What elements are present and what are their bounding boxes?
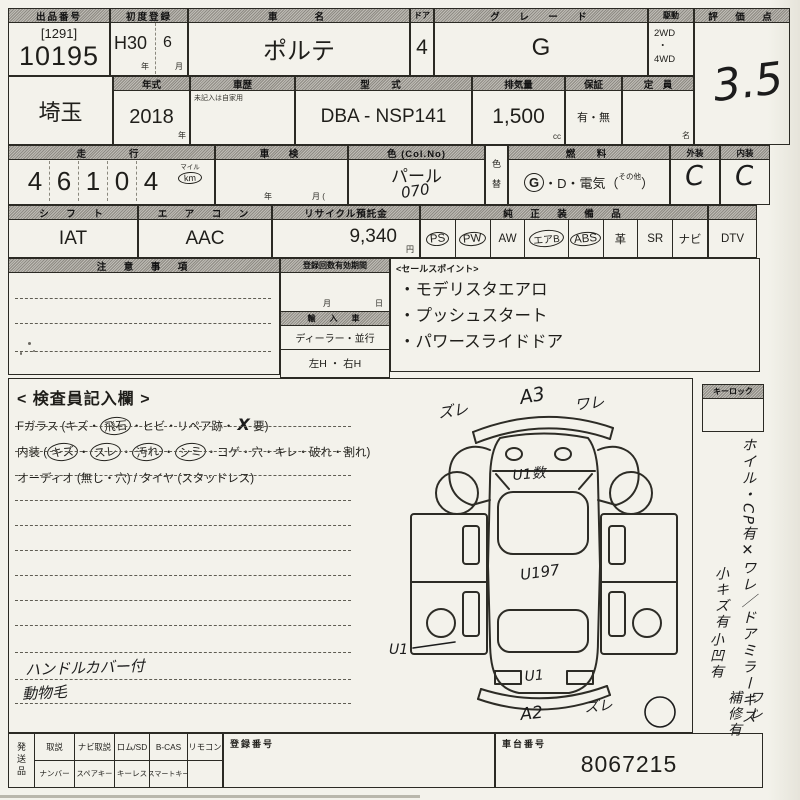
- sales-point: ・パワースライドドア: [399, 329, 759, 355]
- model-code-cell: 型 式 DBA - NSP141: [295, 76, 472, 145]
- dtv-value: DTV: [709, 220, 756, 257]
- annotation-left: U1: [389, 642, 408, 658]
- grade-cell: グ レ ー ド G: [434, 8, 648, 76]
- sidebar-note-repair: 補修有: [727, 690, 741, 738]
- ship-item: リモコン: [187, 734, 222, 760]
- fuel-other-label: その他: [619, 171, 642, 182]
- odo-digit: 4: [21, 161, 49, 201]
- wiper-right: [555, 448, 571, 460]
- text-part: ・: [163, 447, 175, 459]
- left-door-panel: [411, 514, 487, 654]
- odometer-digits: 46104: [21, 161, 165, 201]
- text-part: ・ヒビ・リペア跡・: [131, 421, 238, 433]
- doors-value: 4: [411, 23, 433, 73]
- ship-item: ナビ取説: [74, 734, 114, 760]
- car-name-value: ポルテ: [189, 23, 409, 73]
- text-part: 要): [250, 421, 269, 433]
- sidebar-note-wheel-mirror: ホイル・CP有✕ワレ／ドアミラーキズ: [740, 437, 755, 725]
- annotation-windshield: U1数: [512, 465, 548, 484]
- fuel-value: G ・D・電気（ その他 ）: [509, 160, 669, 204]
- circled-option: キズ: [46, 442, 78, 463]
- ruled-line: [15, 500, 351, 501]
- shift-header: シ フ ト: [9, 206, 137, 220]
- color-value: パール 070: [349, 162, 484, 206]
- equipment-items: PS PW AW エアB ABS 革 SR ナビ: [421, 220, 707, 257]
- scan-speck: [33, 350, 35, 352]
- sales-point: ・モデリスタエアロ: [399, 277, 759, 303]
- first-registration-value: H30 6 年 月: [111, 23, 187, 74]
- interior-grade: C: [734, 160, 755, 192]
- hand-note-animal-hair: 動物毛: [21, 681, 67, 704]
- import-header: 輸 入 車: [281, 311, 389, 326]
- auction-sheet: 出品番号 [1291] 10195 初度登録 H30 6 年 月 車 名 ポルテ…: [0, 0, 800, 800]
- car-diagram: ズレ A3 ワレ U1数 U197 U1 U1 A2 ズレ: [383, 386, 688, 731]
- equipment-item-pw: PW: [455, 220, 490, 257]
- ruled-line: [15, 451, 351, 452]
- first-registration-header: 初度登録: [111, 9, 187, 23]
- recycle-fee-cell: リサイクル預託金 9,340 円: [272, 205, 420, 258]
- unit-year: 年: [141, 61, 149, 72]
- keylock-box: キーロック: [702, 384, 764, 432]
- left-rear-door-window: [463, 592, 479, 636]
- handle-position-value: 左H ・ 右H: [281, 350, 389, 376]
- car-name-cell: 車 名 ポルテ: [188, 8, 410, 76]
- sidebar-note-small-scratch: 小キズ有: [714, 566, 728, 630]
- rear-window: [498, 610, 588, 652]
- annotation-top-right: ワレ: [574, 393, 606, 414]
- aircon-cell: エ ア コ ン AAC: [138, 205, 272, 258]
- drive-type-value: 2WD ・ 4WD: [649, 23, 693, 66]
- right-rear-door-window: [609, 592, 625, 636]
- color-header: 色 (Col.No): [349, 146, 484, 160]
- equipment-label: PS: [426, 231, 450, 247]
- front-bumper-caps: [473, 428, 613, 443]
- shaken-header: 車 検: [216, 146, 347, 160]
- import-value: ディーラー・並行: [281, 326, 389, 350]
- region-value: 埼玉: [9, 77, 112, 144]
- color-cell: 色 (Col.No) パール 070: [348, 145, 485, 205]
- left-rear-wheel: [427, 609, 455, 637]
- registration-count-box: 登録回数有効期間 月 日 輸 入 車 ディーラー・並行 左H ・ 右H: [280, 258, 390, 378]
- registration-number-label: 登録番号: [224, 734, 494, 750]
- lot-bracket: [1291]: [9, 26, 109, 41]
- shipping-label: 発送品: [16, 742, 25, 778]
- ruled-line: [15, 525, 351, 526]
- drive-dot: ・: [654, 40, 693, 53]
- wiper-left: [506, 448, 522, 460]
- recycle-fee-header: リサイクル預託金: [273, 206, 419, 220]
- model-code-header: 型 式: [296, 77, 471, 91]
- ruled-line: [15, 323, 271, 324]
- sales-points-list: ・モデリスタエアロ ・プッシュスタート ・パワースライドドア: [391, 275, 759, 355]
- drive-2wd: 2WD: [654, 27, 693, 40]
- ruled-line: [15, 298, 271, 299]
- ship-item: ロム/SD: [114, 734, 149, 760]
- warranty-value: 有・無: [566, 91, 621, 143]
- lot-number-header: 出品番号: [9, 9, 109, 23]
- dtv-cell: DTV: [708, 205, 757, 258]
- doors-header: ドア: [411, 9, 433, 23]
- fuel-close-paren: ）: [641, 173, 654, 192]
- keylock-header: キーロック: [703, 385, 763, 399]
- equipment-item-leather: 革: [603, 220, 638, 257]
- ship-item: [187, 761, 222, 788]
- ship-item: 取説: [35, 734, 74, 760]
- unit-year: 年: [178, 130, 186, 141]
- ruled-line: [15, 550, 351, 551]
- color-change-bottom: 替: [486, 174, 507, 194]
- color-change-cell: 色 替: [485, 145, 508, 205]
- car-name-header: 車 名: [189, 9, 409, 23]
- equipment-label: 革: [615, 231, 627, 247]
- exterior-grade-cell: 外装 C: [670, 145, 720, 205]
- notice-header: 注 意 事 項: [9, 259, 279, 273]
- unit-persons: 名: [682, 130, 690, 141]
- fuel-header: 燃 料: [509, 146, 669, 160]
- sales-point: ・プッシュスタート: [399, 303, 759, 329]
- warranty-header: 保証: [566, 77, 621, 91]
- region-cell: 埼玉: [8, 76, 113, 145]
- chassis-number-label: 車台番号: [496, 734, 762, 750]
- registration-count-header: 登録回数有効期間: [281, 259, 389, 273]
- warranty-cell: 保証 有・無: [565, 76, 622, 145]
- history-header: 車歴: [191, 77, 294, 91]
- odo-digit: 6: [49, 161, 78, 201]
- sidebar-note-crack: ワレ: [748, 690, 762, 722]
- interior-grade-cell: 内装 C: [720, 145, 770, 205]
- circled-option: 汚れ: [131, 442, 163, 463]
- odometer-header: 走 行: [9, 146, 214, 160]
- first-reg-era: H30: [114, 33, 147, 54]
- grade-value: G: [435, 23, 647, 73]
- annotation-top: A3: [516, 386, 547, 409]
- equipment-label: AW: [498, 233, 516, 245]
- displacement: 1,500: [492, 105, 545, 129]
- shipping-row-2: ナンバー スペアキー キーレス スマートキー: [35, 761, 222, 788]
- equipment-label: ABS: [570, 230, 602, 247]
- unit-mile: マイル: [178, 164, 202, 172]
- sidebar-note-small-dent: 小凹有: [709, 632, 723, 680]
- equipment-item-abs: ABS: [568, 220, 603, 257]
- ruled-line: [15, 625, 351, 626]
- recycle-fee: 9,340: [349, 226, 397, 248]
- aircon-value: AAC: [139, 220, 271, 257]
- registration-count-value: 月 日: [281, 273, 389, 311]
- equipment-label: SR: [647, 233, 663, 245]
- ship-item: スペアキー: [74, 761, 114, 788]
- annotation-top-left: ズレ: [437, 400, 469, 422]
- equipment-header: 純 正 装 備 品: [421, 206, 707, 220]
- exterior-grade: C: [683, 160, 705, 193]
- text-part: X: [238, 415, 250, 434]
- scan-speck: [20, 352, 22, 355]
- color-code: 070: [400, 180, 431, 202]
- text-part: 内装 (: [17, 447, 47, 459]
- odo-digit: 0: [107, 161, 136, 201]
- odo-digit: 1: [78, 161, 107, 201]
- registration-number-box: 登録番号: [223, 733, 495, 788]
- model-year-cell: 年式 2018 年: [113, 76, 190, 145]
- equipment-item-aw: AW: [490, 220, 525, 257]
- shipping-grid: 取説 ナビ取説 ロム/SD B-CAS リモコン ナンバー スペアキー キーレス…: [34, 734, 222, 787]
- ruled-line: [15, 703, 351, 704]
- score-cell: 評 価 点 3.5: [694, 8, 790, 145]
- ship-item: スマートキー: [149, 761, 187, 788]
- notice-box: 注 意 事 項: [8, 258, 280, 375]
- unit-month: 月 (: [312, 191, 325, 202]
- history-note: 未記入は自家用: [191, 91, 294, 103]
- ruled-line: [15, 600, 351, 601]
- odo-digit: 4: [136, 161, 165, 201]
- ruled-line: [15, 475, 351, 476]
- hand-note-handle-cover: ハンドルカバー付: [25, 655, 145, 680]
- first-registration-cell: 初度登録 H30 6 年 月: [110, 8, 188, 76]
- model-year: 2018: [129, 106, 174, 129]
- chassis-number-box: 車台番号 8067215: [495, 733, 763, 788]
- ruled-line: [15, 351, 271, 352]
- interior-header: 内装: [721, 146, 769, 160]
- unit-month: 月: [175, 61, 183, 72]
- equipment-label: エアB: [529, 229, 565, 249]
- displacement-value: 1,500 cc: [473, 91, 564, 143]
- model-year-value: 2018 年: [114, 91, 189, 143]
- doors-cell: ドア 4: [410, 8, 434, 76]
- equipment-item-airbag: エアB: [524, 220, 567, 257]
- equipment-label: ナビ: [679, 231, 702, 247]
- aircon-header: エ ア コ ン: [139, 206, 271, 220]
- equipment-item-navi: ナビ: [672, 220, 707, 257]
- shaken-value: 年 月 (: [216, 160, 347, 204]
- exterior-header: 外装: [671, 146, 719, 160]
- lot-number-cell: 出品番号 [1291] 10195: [8, 8, 110, 76]
- equipment-cell: 純 正 装 備 品 PS PW AW エアB ABS 革 SR ナビ: [420, 205, 708, 258]
- right-rear-wheel: [633, 609, 661, 637]
- capacity-value: 名: [623, 91, 693, 143]
- odometer-unit: マイル km: [178, 164, 202, 184]
- scan-speck: [28, 342, 31, 345]
- shipping-row-1: 取説 ナビ取説 ロム/SD B-CAS リモコン: [35, 734, 222, 761]
- annotation-roof: U197: [519, 561, 561, 584]
- odometer-value: 46104 マイル km: [9, 160, 214, 204]
- shift-cell: シ フ ト IAT: [8, 205, 138, 258]
- unit-cc: cc: [553, 132, 561, 141]
- drive-type-header: 駆動: [649, 9, 693, 23]
- dtv-header: [709, 206, 756, 220]
- text-part: ・コゲ・穴・キレ・破れ・割れ): [206, 447, 371, 459]
- shipping-items-box: 発送品 取説 ナビ取説 ロム/SD B-CAS リモコン ナンバー スペアキー …: [8, 733, 223, 788]
- unit-km-circled: km: [178, 171, 203, 184]
- unit-yen: 円: [406, 244, 414, 255]
- unit-day: 日: [375, 298, 383, 309]
- grade-header: グ レ ー ド: [435, 9, 647, 23]
- right-door-panel: [601, 514, 677, 654]
- ship-item: ナンバー: [35, 761, 74, 788]
- unit-year: 年: [264, 191, 272, 202]
- drive-type-cell: 駆動 2WD ・ 4WD: [648, 8, 694, 76]
- sales-points-box: <セールスポイント> ・モデリスタエアロ ・プッシュスタート ・パワースライドド…: [390, 258, 760, 372]
- ship-item: キーレス: [114, 761, 149, 788]
- fuel-cell: 燃 料 G ・D・電気（ その他 ）: [508, 145, 670, 205]
- equipment-item-ps: PS: [421, 220, 455, 257]
- lot-number-value: [1291] 10195: [9, 26, 109, 72]
- chassis-number-value: 8067215: [496, 751, 762, 778]
- text-part: ・: [78, 447, 90, 459]
- sales-points-title: <セールスポイント>: [391, 259, 759, 275]
- equipment-label: PW: [459, 230, 487, 246]
- text-part: Fガラス (キズ・: [17, 421, 100, 433]
- equipment-item-sr: SR: [637, 220, 672, 257]
- shaken-cell: 車 検 年 月 (: [215, 145, 348, 205]
- annotation-rear: U1: [524, 667, 544, 685]
- annotation-bottom-right: ズレ: [584, 698, 613, 716]
- odometer-cell: 走 行 46104 マイル km: [8, 145, 215, 205]
- windshield: [498, 492, 588, 554]
- right-front-door-window: [609, 526, 625, 564]
- ship-item: B-CAS: [149, 734, 187, 760]
- model-year-header: 年式: [114, 77, 189, 91]
- left-front-wheel: [436, 472, 478, 514]
- unit-month: 月: [323, 298, 331, 309]
- annotation-bottom: A2: [518, 703, 543, 725]
- color-change-label: 色 替: [486, 146, 507, 194]
- score-value: 3.5: [710, 53, 786, 112]
- hand-drawn-circle-mark: [645, 697, 675, 727]
- drive-4wd: 4WD: [654, 53, 693, 66]
- color-change-top: 色: [486, 154, 507, 174]
- divider: [155, 23, 156, 74]
- ruled-line: [15, 426, 351, 427]
- displacement-header: 排気量: [473, 77, 564, 91]
- capacity-cell: 定 員 名: [622, 76, 694, 145]
- model-code-value: DBA - NSP141: [296, 91, 471, 143]
- fuel-gasoline-circled: G: [524, 173, 544, 192]
- displacement-cell: 排気量 1,500 cc: [472, 76, 565, 145]
- fuel-options: ・D・電気（: [544, 173, 618, 192]
- score-header: 評 価 点: [695, 9, 789, 23]
- left-front-door-window: [463, 526, 479, 564]
- shift-value: IAT: [9, 220, 137, 257]
- circled-option: スレ: [89, 442, 121, 463]
- recycle-fee-value: 9,340 円: [273, 220, 419, 257]
- right-front-wheel: [610, 472, 652, 514]
- front-bumper-outer: [473, 417, 613, 432]
- annotation-leader-line: [413, 642, 455, 648]
- history-cell: 車歴 未記入は自家用: [190, 76, 295, 145]
- capacity-header: 定 員: [623, 77, 693, 91]
- first-reg-month: 6: [163, 34, 172, 52]
- ruled-line: [15, 575, 351, 576]
- circled-option: シミ: [174, 442, 206, 463]
- ruled-line: [15, 652, 351, 653]
- lot-number: 10195: [9, 41, 109, 72]
- text-part: ・: [121, 447, 133, 459]
- paper-edge: [0, 795, 420, 798]
